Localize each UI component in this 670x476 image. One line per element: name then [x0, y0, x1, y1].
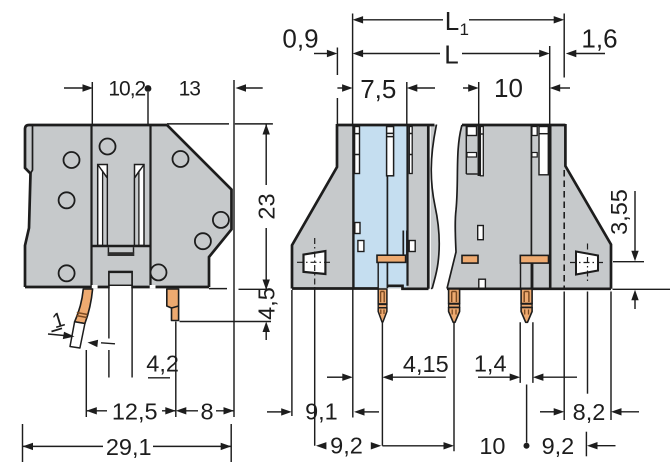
- svg-text:L: L: [445, 6, 459, 36]
- svg-text:3,55: 3,55: [606, 189, 632, 235]
- svg-text:8,2: 8,2: [573, 399, 606, 425]
- svg-text:10: 10: [494, 73, 523, 103]
- svg-text:1,6: 1,6: [581, 24, 617, 54]
- svg-text:0,9: 0,9: [282, 24, 318, 54]
- svg-text:9,2: 9,2: [330, 433, 363, 459]
- svg-text:23: 23: [254, 193, 280, 219]
- svg-text:7,5: 7,5: [360, 74, 396, 104]
- svg-text:4,2: 4,2: [146, 351, 179, 377]
- svg-text:10,2: 10,2: [108, 78, 145, 101]
- svg-text:13: 13: [179, 78, 201, 101]
- svg-text:4,15: 4,15: [403, 351, 449, 377]
- svg-text:1,4: 1,4: [474, 351, 507, 377]
- svg-text:1: 1: [460, 20, 469, 39]
- svg-text:29,1: 29,1: [106, 434, 152, 460]
- svg-text:10: 10: [479, 433, 505, 459]
- svg-text:12,5: 12,5: [112, 399, 158, 425]
- svg-text:9,1: 9,1: [305, 399, 338, 425]
- svg-text:9,2: 9,2: [542, 433, 575, 459]
- svg-text:4,5: 4,5: [254, 287, 280, 320]
- svg-text:L: L: [444, 39, 458, 69]
- svg-text:8: 8: [200, 399, 213, 425]
